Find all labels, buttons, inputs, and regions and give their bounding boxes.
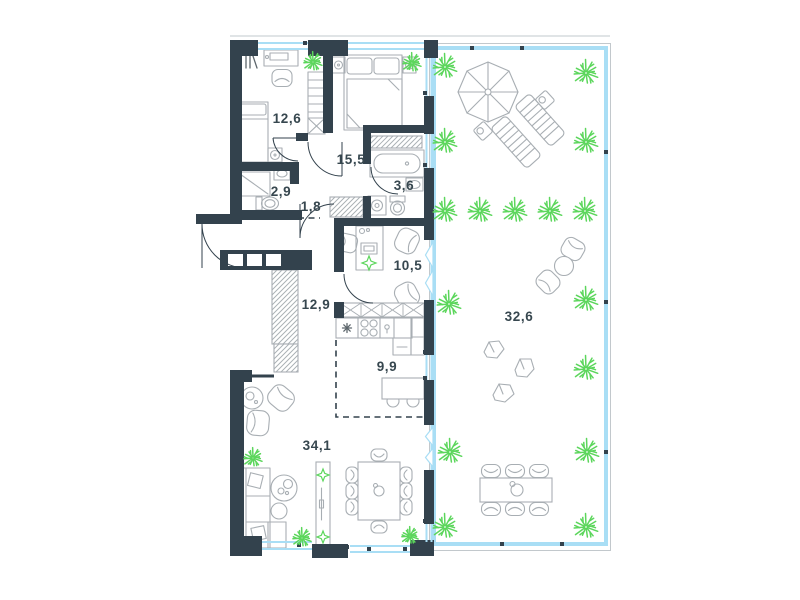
sink-symbol (343, 324, 352, 333)
dining-chair (400, 467, 412, 483)
bed-single (238, 102, 268, 162)
plant (433, 128, 457, 152)
rock (484, 341, 504, 358)
bedroom1-door (273, 138, 298, 161)
plant (293, 528, 311, 546)
shower (238, 172, 270, 196)
bathtub (370, 150, 424, 177)
hallway-wardrobes (272, 270, 298, 372)
dining-chair (400, 483, 412, 499)
dining-table (358, 462, 400, 520)
terrace-dining-table (480, 478, 552, 502)
terrace-dining-chair (530, 465, 549, 478)
plant (573, 197, 597, 221)
plant (403, 53, 421, 71)
plant (437, 290, 461, 314)
plant (574, 59, 598, 83)
armchair (264, 382, 297, 415)
plant (468, 197, 492, 221)
area-label-bedroom-2: 15,5 (337, 152, 366, 167)
bar-table (382, 378, 424, 407)
area-label-terrace: 32,6 (505, 309, 534, 324)
bookshelf (246, 54, 257, 68)
rock (493, 384, 514, 402)
nightstand (332, 57, 345, 73)
terrace-dining-chair (530, 503, 549, 516)
plant (575, 438, 599, 462)
area-label-bedroom-1: 12,6 (273, 111, 302, 126)
study-door (344, 274, 373, 303)
area-label-hall: 1,8 (301, 199, 322, 214)
dining-chair (346, 467, 358, 483)
area-label-shower-room: 2,9 (271, 184, 292, 199)
armchair (392, 225, 422, 256)
area-label-study: 10,5 (394, 258, 423, 273)
area-label-living-room: 34,1 (303, 438, 332, 453)
desk-chair (272, 70, 292, 87)
nightstand (268, 148, 282, 162)
area-label-kitchen: 9,9 (377, 359, 398, 374)
dining-chair (371, 449, 387, 461)
terrace-dining-chair (506, 465, 525, 478)
lounger-side-table (473, 121, 493, 141)
plant (574, 128, 598, 152)
wardrobe (308, 72, 325, 134)
dining-chair (371, 521, 387, 533)
armchair (246, 410, 270, 437)
side-table (241, 387, 263, 409)
plant (538, 197, 562, 221)
dining-chair (346, 499, 358, 515)
terrace-dining-chair (482, 503, 501, 516)
plant (244, 448, 262, 466)
rock (515, 359, 534, 377)
parasol (458, 62, 518, 122)
plant (503, 197, 527, 221)
area-label-hallway: 12,9 (302, 297, 331, 312)
terrace-dining-chair (482, 465, 501, 478)
plant (574, 355, 598, 379)
potted-plant (362, 256, 376, 270)
dining-chair (400, 499, 412, 515)
desk (264, 50, 298, 66)
terrace-round-table (555, 257, 574, 276)
labels-layer: 12,6 15,5 2,9 1,8 3,6 10,5 12,9 9,9 34,1… (271, 111, 534, 453)
floor-plan: 12,6 15,5 2,9 1,8 3,6 10,5 12,9 9,9 34,1… (0, 0, 800, 600)
area-label-bathroom: 3,6 (394, 178, 415, 193)
fridge (411, 318, 424, 337)
toilet (390, 196, 405, 215)
coffee-table (271, 475, 297, 519)
bed-double (344, 55, 402, 130)
plant (438, 438, 462, 462)
plant (574, 513, 598, 537)
plant (433, 513, 457, 537)
plant (433, 197, 457, 221)
terrace-dining-chair (506, 503, 525, 516)
plant (574, 286, 598, 310)
kitchen-counter (336, 318, 424, 355)
dining-chair (346, 483, 358, 499)
floor-plan-page: 12,6 15,5 2,9 1,8 3,6 10,5 12,9 9,9 34,1… (0, 0, 800, 600)
